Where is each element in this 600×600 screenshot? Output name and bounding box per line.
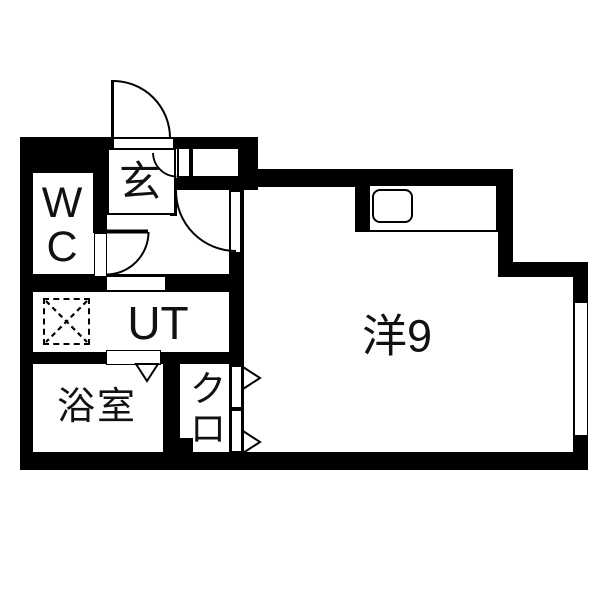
floorplan-canvas: WC 玄 UT 浴室 ク ロ 洋9 — [0, 0, 600, 600]
label-closet-char1: ク — [190, 371, 226, 407]
washing-machine-x — [46, 301, 87, 342]
label-entrance: 玄 — [119, 161, 161, 203]
label-western-room: 洋9 — [362, 314, 432, 359]
label-wc: WC — [42, 182, 83, 270]
label-bathroom: 浴室 — [57, 388, 137, 426]
closet-door-triangle-upper — [243, 367, 260, 389]
door-symbols-layer — [0, 0, 600, 600]
bath-door-triangle — [136, 364, 158, 381]
label-closet-char2: ロ — [190, 411, 226, 447]
wc-door-arc — [106, 232, 149, 275]
entrance-door-arc — [113, 81, 171, 138]
label-utility: UT — [127, 300, 188, 346]
hall-door-arc — [176, 191, 236, 251]
closet-door-triangle-lower — [243, 431, 260, 453]
